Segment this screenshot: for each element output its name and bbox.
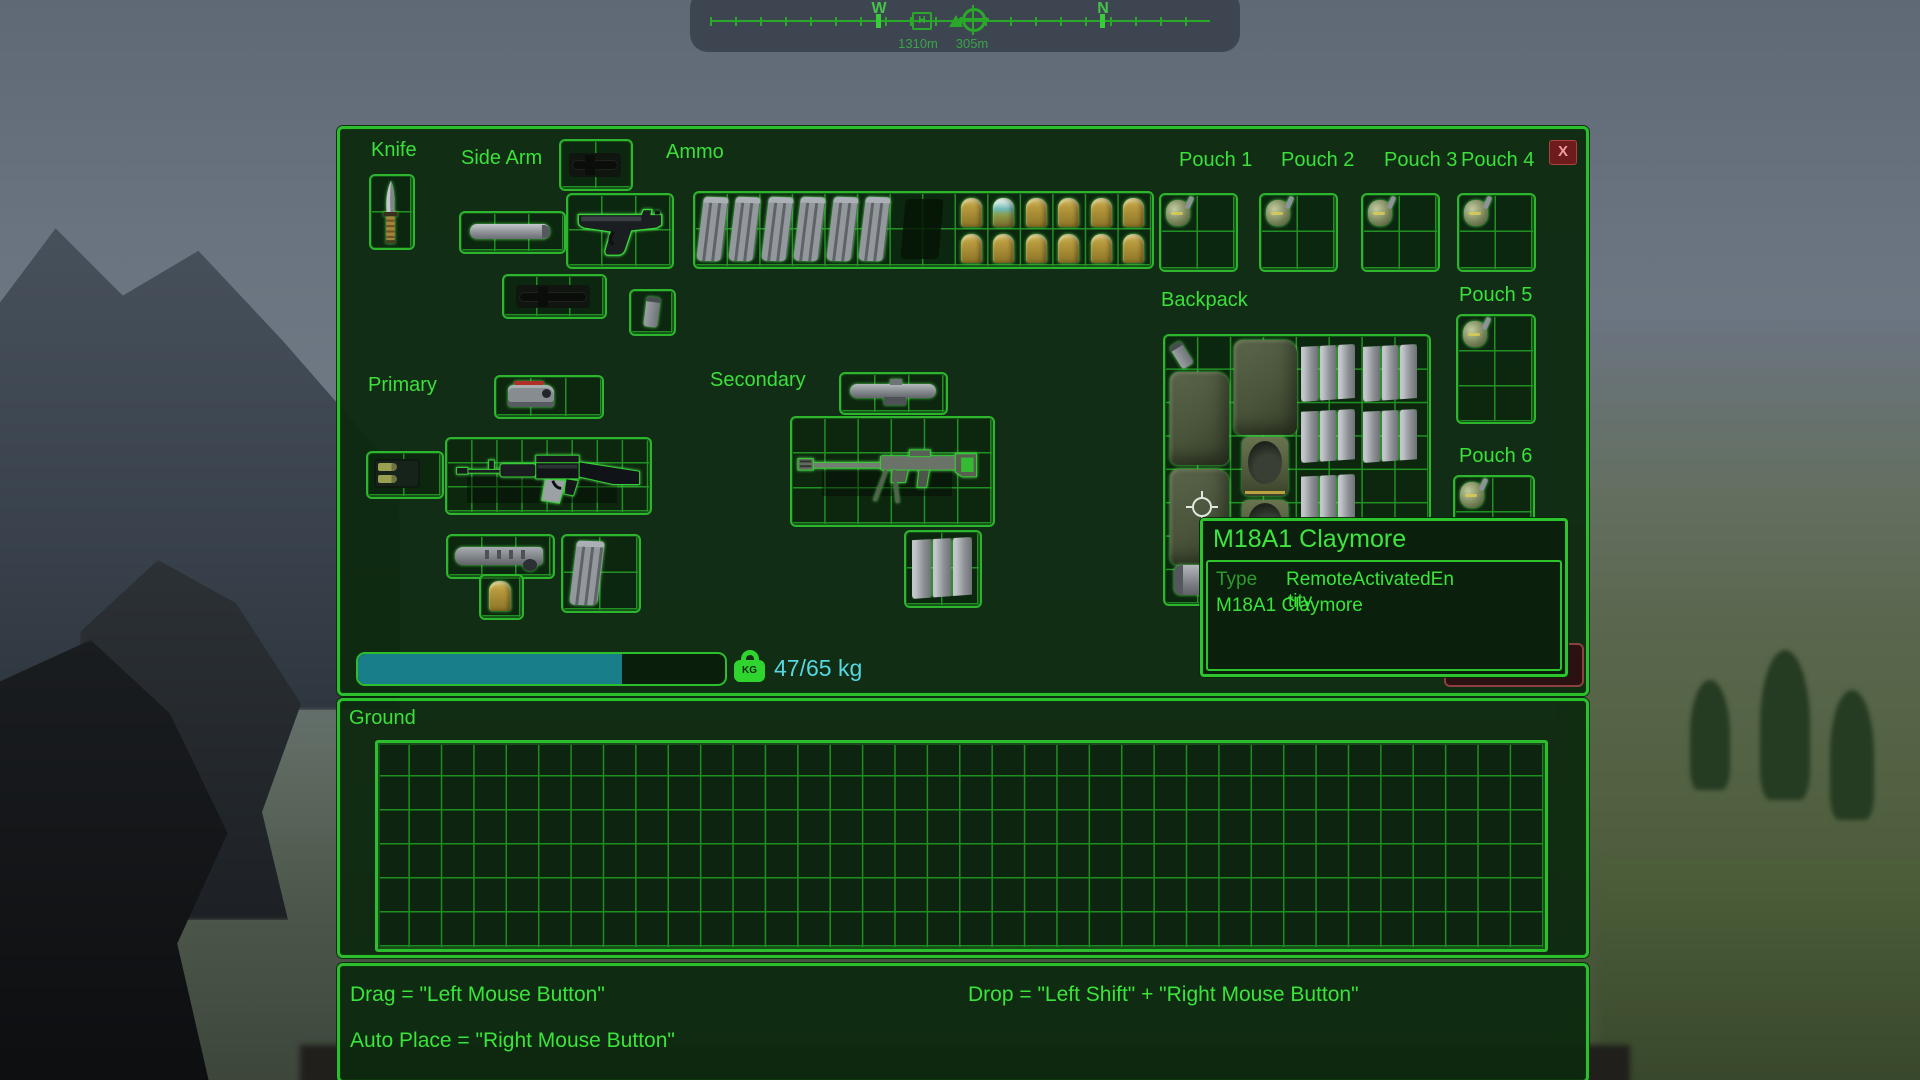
tree — [1760, 650, 1810, 800]
sidearm-optic-slot[interactable] — [559, 139, 633, 191]
stripper-clip-icon — [374, 459, 420, 488]
weight-kg-icon: KG — [734, 650, 765, 682]
frag-grenade-icon — [1266, 200, 1290, 226]
pistol-icon — [572, 199, 668, 263]
dome-pouch-icon — [1242, 437, 1288, 496]
red-dot-sight-icon — [508, 385, 554, 407]
knife-section-label: Knife — [371, 139, 417, 162]
secondary-weapon-slot[interactable] — [790, 416, 995, 527]
pouch3-label: Pouch 3 — [1384, 149, 1457, 172]
grenade-40mm-icon — [1091, 198, 1112, 227]
ground-grid[interactable] — [375, 740, 1548, 952]
suppressor-icon — [470, 224, 550, 239]
grenade-40mm-slot[interactable] — [479, 574, 524, 620]
empty-mag-ghost-icon — [900, 199, 943, 259]
ammo-section-label: Ammo — [666, 141, 724, 164]
helipad-marker-icon: H — [912, 12, 932, 30]
compass-west-label: W — [871, 0, 886, 18]
compass-north-label: N — [1097, 0, 1109, 18]
tooltip-item-name: M18A1 Claymore — [1216, 595, 1363, 617]
grenade-40mm-icon — [1058, 234, 1079, 263]
help-auto-place: Auto Place = "Right Mouse Button" — [350, 1029, 675, 1053]
grenade-40mm-icon — [993, 234, 1014, 263]
grenade-40mm-icon — [961, 198, 982, 227]
pouch1-grid[interactable] — [1159, 193, 1238, 272]
grenade-40mm-icon — [961, 234, 982, 263]
pouch5-grid[interactable] — [1456, 314, 1536, 424]
tooltip-title: M18A1 Claymore — [1203, 521, 1565, 557]
primary-section-label: Primary — [368, 374, 437, 397]
pouch6-label: Pouch 6 — [1459, 445, 1532, 468]
ground-panel: Ground — [337, 698, 1589, 958]
game-screen: W N H 1310m 305m Knife Side Arm Ammo Pou… — [0, 0, 1920, 1080]
tooltip-type-label: Type — [1216, 569, 1257, 591]
pouch1-label: Pouch 1 — [1179, 149, 1252, 172]
pouch2-grid[interactable] — [1259, 193, 1338, 272]
barrett-rifle-icon — [794, 424, 990, 520]
grenade-launcher-slot[interactable] — [446, 534, 555, 579]
mag-bundle-icon — [1363, 344, 1417, 402]
background-grass — [1600, 860, 1920, 1080]
primary-optic-slot[interactable] — [494, 375, 604, 419]
marker-distance: 305m — [956, 36, 989, 51]
claymore-bag-icon — [1170, 372, 1229, 465]
m203-launcher-icon — [455, 547, 543, 565]
suppressor-slot[interactable] — [459, 211, 566, 254]
weight-value: 47/65 kg — [774, 655, 862, 682]
dark-attachment-icon — [516, 285, 590, 308]
mag-bundle-icon — [1301, 344, 1355, 402]
compass-strip: W N H 1310m 305m — [690, 0, 1240, 52]
sniper-scope-icon — [850, 384, 936, 398]
marker-distance: 1310m — [898, 36, 938, 51]
help-panel: Drag = "Left Mouse Button" Drop = "Left … — [337, 963, 1589, 1080]
tree — [1690, 680, 1730, 790]
pistol-attachment-slot[interactable] — [502, 274, 607, 319]
grenade-40mm-icon — [1026, 234, 1047, 263]
grenade-40mm-icon — [1058, 198, 1079, 227]
side-arm-section-label: Side Arm — [461, 147, 542, 170]
mag-bundle-icon — [912, 537, 972, 599]
pistol-mag-slot[interactable] — [629, 289, 676, 336]
frag-grenade-icon — [1368, 200, 1392, 226]
backpack-section-label: Backpack — [1161, 289, 1248, 312]
primary-mag-slot[interactable] — [561, 534, 641, 613]
claymore-bag-icon — [1234, 340, 1297, 435]
frag-grenade-icon — [1463, 321, 1487, 347]
tooltip-type-value: RemoteActivatedEn — [1286, 569, 1454, 591]
grenade-40mm-icon — [1123, 198, 1144, 227]
primary-clip-slot[interactable] — [366, 451, 444, 499]
pouch3-grid[interactable] — [1361, 193, 1440, 272]
pouch4-grid[interactable] — [1457, 193, 1536, 272]
ammo-grid[interactable] — [693, 191, 1154, 269]
mag-bundle-icon — [1301, 409, 1355, 463]
pouch5-label: Pouch 5 — [1459, 284, 1532, 307]
secondary-section-label: Secondary — [710, 369, 806, 392]
ground-section-label: Ground — [349, 707, 416, 730]
knife-icon — [378, 179, 404, 245]
tree — [1830, 690, 1874, 820]
tooltip-body: Type RemoteActivatedEn tity M18A1 Claymo… — [1206, 560, 1562, 671]
secondary-mag-slot[interactable] — [904, 530, 982, 608]
frag-grenade-icon — [1460, 482, 1484, 508]
secondary-optic-slot[interactable] — [839, 372, 948, 415]
grenade-40mm-icon — [1026, 198, 1047, 227]
knife-slot[interactable] — [369, 174, 415, 250]
frag-grenade-icon — [1166, 200, 1190, 226]
pouch2-label: Pouch 2 — [1281, 149, 1354, 172]
pistol-scope-icon — [569, 153, 621, 177]
waypoint-triangle-icon — [949, 15, 963, 27]
weight-bar-fill — [358, 654, 622, 684]
item-tooltip: M18A1 Claymore Type RemoteActivatedEn ti… — [1200, 518, 1568, 677]
primary-weapon-slot[interactable] — [445, 437, 652, 515]
pouch4-label: Pouch 4 — [1461, 149, 1534, 172]
help-drop: Drop = "Left Shift" + "Right Mouse Butto… — [968, 983, 1359, 1007]
grenade-40mm-icon — [1091, 234, 1112, 263]
grenade-40mm-icon — [489, 581, 511, 611]
close-button[interactable]: X — [1549, 140, 1577, 165]
mag-bundle-icon — [1363, 409, 1417, 463]
frag-grenade-icon — [1464, 200, 1488, 226]
weight-bar — [356, 652, 727, 686]
objective-crosshair-icon — [962, 8, 986, 32]
help-drag: Drag = "Left Mouse Button" — [350, 983, 605, 1007]
pistol-slot[interactable] — [566, 193, 674, 269]
grenade-40mm-icon — [1123, 234, 1144, 263]
m4-rifle-icon — [452, 443, 646, 509]
smoke-round-40mm-icon — [993, 198, 1014, 227]
